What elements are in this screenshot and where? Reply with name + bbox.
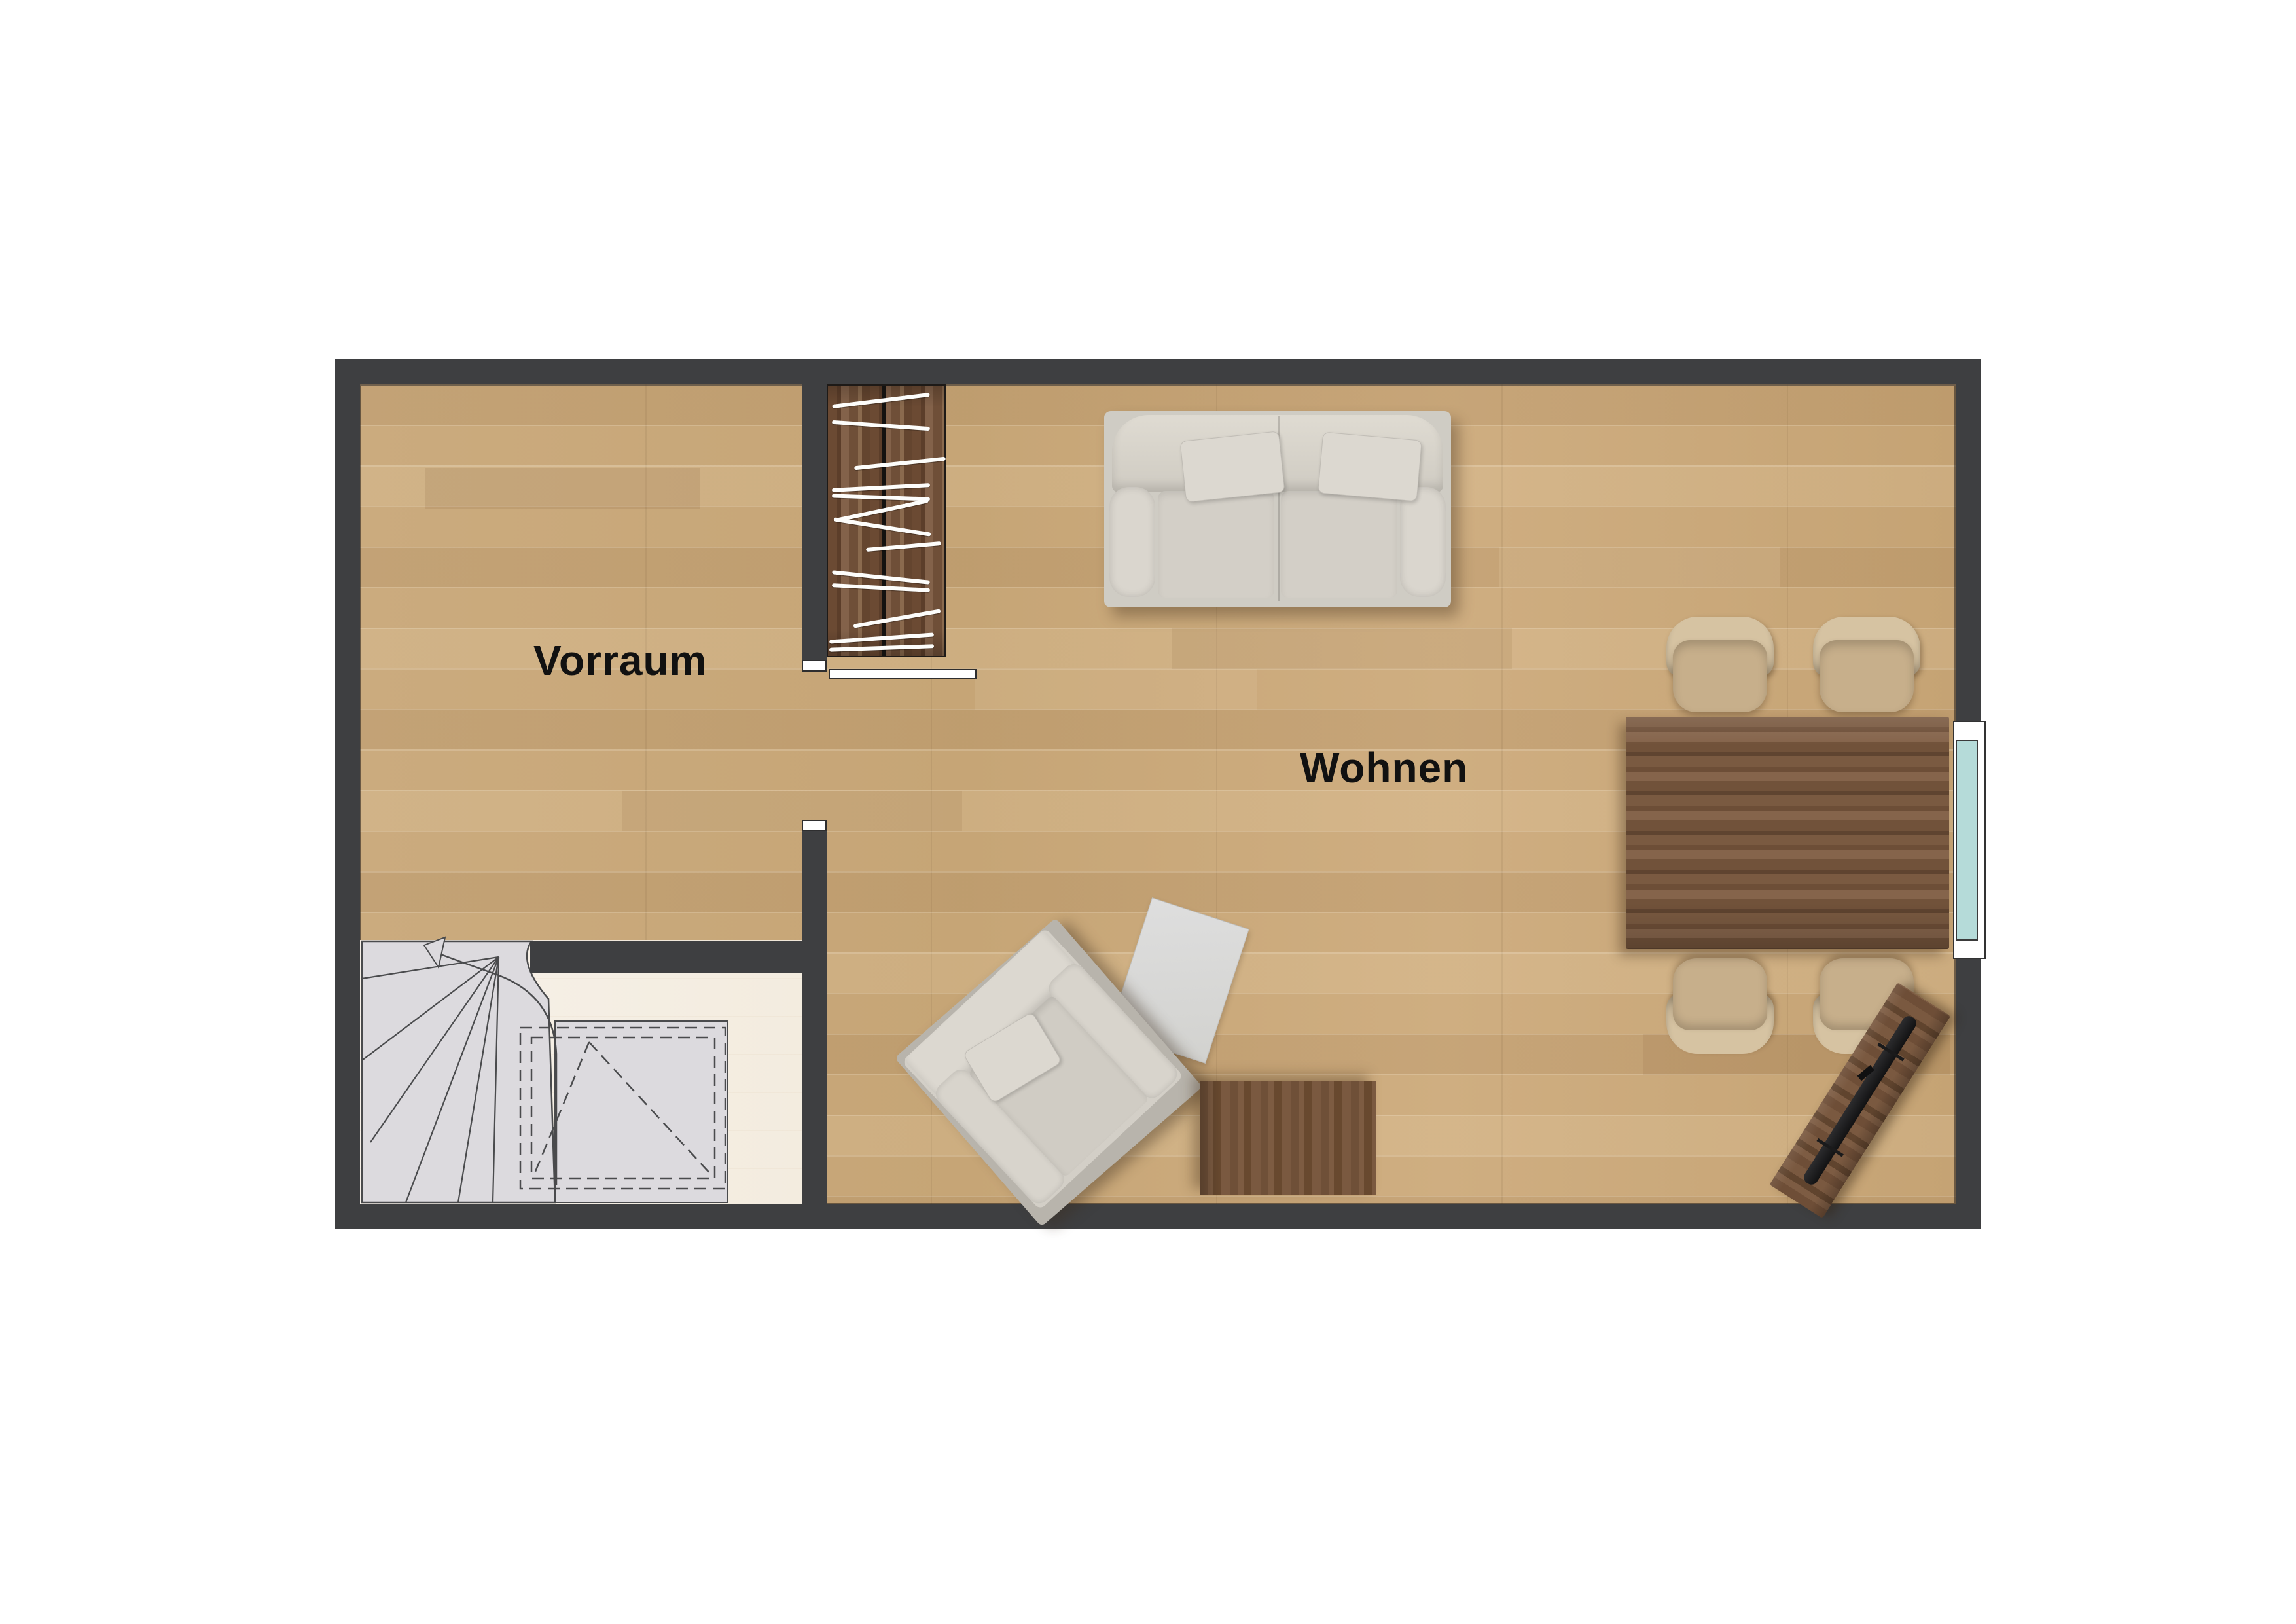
coffee-table (1200, 1081, 1376, 1195)
floor-plan-canvas: Vorraum Wohnen (0, 0, 2296, 1624)
sofa-armrest-left (1109, 487, 1155, 597)
room-label-vorraum: Vorraum (533, 636, 707, 685)
stair-room-wall (530, 941, 827, 973)
chair-seat (1673, 640, 1767, 712)
sofa-pillow (1180, 431, 1285, 502)
winder-staircase (360, 936, 805, 1206)
dining-chair (1813, 617, 1920, 715)
chair-seat (1673, 958, 1767, 1030)
dining-chair (1666, 617, 1774, 715)
window-glass (1956, 740, 1978, 941)
sofa-seat-right (1281, 491, 1397, 598)
dining-chair (1666, 956, 1774, 1054)
two-seat-sofa (1104, 411, 1451, 607)
partition-wall-upper (802, 384, 827, 660)
chair-seat (1820, 640, 1914, 712)
dining-table (1626, 717, 1949, 949)
wall-end-cap (802, 660, 827, 672)
open-door-leaf (829, 669, 977, 679)
room-label-wohnen: Wohnen (1300, 744, 1468, 792)
partition-wall-lower (802, 831, 827, 1204)
wall-end-cap (802, 820, 827, 831)
sofa-armrest-right (1400, 487, 1446, 597)
sofa-pillow (1318, 432, 1422, 502)
sofa-seat-left (1158, 491, 1274, 598)
